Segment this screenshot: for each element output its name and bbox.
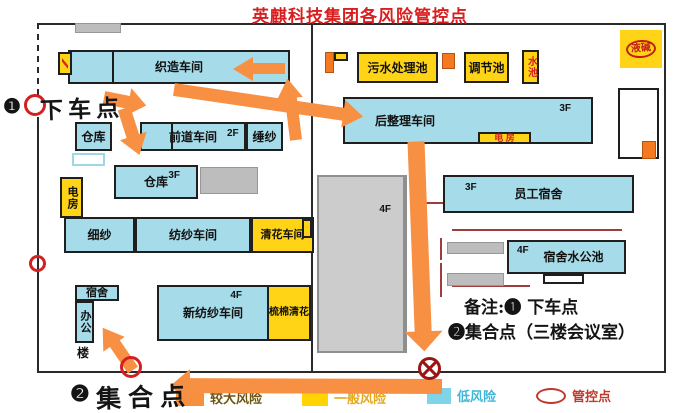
building-power-room-left-label: 电房 <box>66 186 77 210</box>
label-office-tower-suffix: 楼 <box>77 344 89 361</box>
arrow-shaft <box>408 141 432 337</box>
arrow-head <box>341 99 368 130</box>
building-office-tower-label: 办公 <box>79 310 90 334</box>
divider-line-0 <box>112 52 114 82</box>
liquid-alkali-bubble: 液碱 <box>625 39 656 59</box>
arrow-shaft <box>248 63 285 74</box>
control-point-marker-gate-west <box>29 255 46 272</box>
building-warehouse-1: 仓库 <box>75 122 112 151</box>
building-weaving-workshop-label: 织造车间 <box>155 61 203 73</box>
building-new-spinning-workshop-floor: 4F <box>230 291 242 301</box>
building-dorm-small-label: 宿舍 <box>86 288 108 299</box>
low-risk-label: 低风险 <box>457 390 496 403</box>
building-finishing-workshop-floor: 3F <box>559 104 571 114</box>
building-staff-dormitory: 员工宿舍3F <box>443 175 634 213</box>
building-spinning-workshop-label: 纺纱车间 <box>169 229 217 241</box>
liquid-alkali-box: 液碱 <box>620 30 662 68</box>
arrow-head <box>274 74 303 100</box>
major-risk-label: 较大风险 <box>210 392 262 405</box>
divider-line-1 <box>171 124 173 149</box>
wall-4 <box>664 23 666 373</box>
notes-line1: 备注:❶ 下车点 <box>448 296 635 321</box>
building-dorm-water-pool: 宿舍水公池4F <box>507 240 626 274</box>
building-carding-cleaning-label: 梳棉清花 <box>269 308 309 318</box>
arrow-shaft <box>185 378 442 394</box>
building-flag-pole <box>325 52 334 73</box>
evacuation-arrow-route-weaving-to-finishing <box>173 83 367 124</box>
building-dorm-water-pool-label: 宿舍水公池 <box>543 251 603 263</box>
building-gray-bar-2 <box>447 273 504 286</box>
wall-5 <box>311 23 313 372</box>
hazard-mark-icon <box>62 56 68 71</box>
building-central-building-floor: 4F <box>379 205 391 215</box>
building-dorm-water-pool-floor: 4F <box>517 246 529 256</box>
building-fine-yarn-room: 细纱 <box>64 217 135 253</box>
building-power-room-strip-label: 电 房 <box>494 134 515 143</box>
assembly-point-label: 集合点 <box>95 376 192 413</box>
building-winding-room-label: 缍纱 <box>252 131 276 143</box>
building-front-process-workshop-label: 前道车间 <box>169 131 217 143</box>
evacuation-arrow-route-down-center <box>408 141 433 355</box>
arrow-head <box>230 57 253 81</box>
general-risk-label: 一般风险 <box>334 392 386 405</box>
building-gray-shed-1 <box>200 167 258 194</box>
risk-map-page: 英麒科技集团各风险管控点 织造车间仓库前道车间2F缍纱电房仓库3F细纱纺纱车间清… <box>0 0 678 413</box>
road-line-0 <box>452 229 622 231</box>
arrow-shaft <box>173 83 349 121</box>
building-office-tower: 办公 <box>75 301 94 343</box>
building-finishing-workshop: 后整理车间3F <box>343 97 593 144</box>
building-cleaning-workshop-label: 清花车间 <box>261 230 305 241</box>
wall-2 <box>37 117 39 373</box>
building-spinning-workshop: 纺纱车间 <box>135 217 251 253</box>
evacuation-arrow-route-into-weaving <box>230 63 285 74</box>
building-warehouse-2: 仓库3F <box>114 165 198 199</box>
building-staff-dormitory-floor: 3F <box>465 183 477 193</box>
building-front-process-workshop-floor: 2F <box>227 129 239 139</box>
building-warehouse-1-label: 仓库 <box>81 131 105 143</box>
page-title: 英麒科技集团各风险管控点 <box>240 2 480 27</box>
building-central-building: 4F <box>317 175 407 353</box>
building-front-process-workshop: 前道车间2F <box>140 122 246 151</box>
building-dorm-small: 宿舍 <box>75 285 119 301</box>
factory-map: 织造车间仓库前道车间2F缍纱电房仓库3F细纱纺纱车间清花车间宿舍办公新纺纱车间4… <box>0 0 678 413</box>
legend-item-control-point: 管控点 <box>536 388 611 404</box>
building-water-pool: 水池 <box>522 50 539 84</box>
building-orange-kiosk-2 <box>642 141 656 159</box>
building-staff-dormitory-label: 员工宿舍 <box>514 188 562 200</box>
building-weaving-tag <box>58 52 72 75</box>
building-regulating-pool-label: 调节池 <box>468 62 504 74</box>
building-new-spinning-workshop: 新纺纱车间4F <box>157 285 269 341</box>
building-winding-room: 缍纱 <box>246 122 283 151</box>
building-regulating-pool: 调节池 <box>464 52 509 83</box>
road-line-2 <box>440 238 442 260</box>
building-water-pool-label: 水池 <box>526 56 536 78</box>
arrow-shaft <box>284 92 302 141</box>
notes-line2: ❷集合点（三楼会议室） <box>448 323 635 343</box>
building-gray-roof <box>75 23 121 33</box>
building-finishing-workshop-label: 后整理车间 <box>375 115 435 127</box>
notes-block: 备注:❶ 下车点 ❷集合点（三楼会议室） <box>448 296 635 345</box>
control-point-swatch <box>536 388 566 404</box>
wall-1 <box>37 23 39 97</box>
control-point-marker-gate-assembly <box>120 356 142 378</box>
building-orange-kiosk-1 <box>442 53 455 69</box>
building-warehouse-2-floor: 3F <box>168 171 180 181</box>
control-point-label: 管控点 <box>572 390 611 403</box>
building-outline-annex <box>543 274 584 284</box>
building-yellow-kiosk <box>302 219 312 238</box>
dropoff-point-label: 下车点 <box>39 89 124 126</box>
building-power-room-strip: 电 房 <box>478 132 531 144</box>
arrow-head <box>405 330 444 354</box>
road-line-3 <box>440 263 442 297</box>
building-power-room-left: 电房 <box>60 177 83 218</box>
building-warehouse-2-label: 仓库 <box>144 176 168 188</box>
building-new-spinning-workshop-label: 新纺纱车间 <box>183 307 243 319</box>
no-exit-icon <box>417 356 442 386</box>
assembly-point-number: ❷ <box>70 381 90 407</box>
evacuation-arrow-route-bottom-to-assembly <box>167 378 442 394</box>
building-gray-bar-1 <box>447 242 504 254</box>
building-fine-yarn-room-label: 细纱 <box>87 229 111 241</box>
building-carding-cleaning: 梳棉清花 <box>267 285 311 341</box>
building-white-shed <box>72 153 105 166</box>
building-sewage-treatment-pool: 污水处理池 <box>357 52 438 83</box>
dropoff-point-number: ❶ <box>3 94 21 118</box>
building-sewage-treatment-pool-label: 污水处理池 <box>367 62 427 74</box>
building-flag-top <box>334 52 348 61</box>
